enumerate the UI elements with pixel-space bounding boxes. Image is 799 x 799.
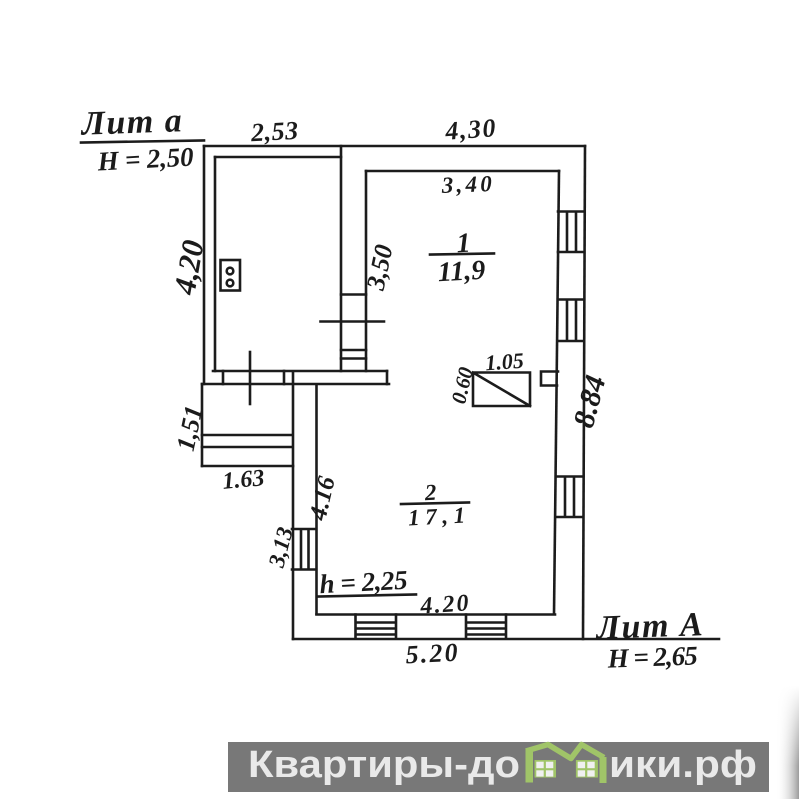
svg-text:h = 2,25: h = 2,25 — [319, 565, 408, 600]
svg-text:1: 1 — [456, 228, 472, 260]
svg-text:1.63: 1.63 — [221, 465, 265, 495]
svg-text:3,40: 3,40 — [440, 171, 492, 198]
svg-text:2,53: 2,53 — [249, 116, 298, 147]
svg-text:4,30: 4,30 — [443, 113, 496, 145]
svg-text:H = 2,50: H = 2,50 — [96, 141, 195, 176]
svg-text:Лит а: Лит а — [79, 102, 182, 143]
svg-text:ики.рф: ики.рф — [609, 744, 757, 786]
svg-text:1.05: 1.05 — [484, 348, 524, 376]
svg-text:H = 2,65: H = 2,65 — [606, 640, 698, 673]
svg-text:2: 2 — [423, 480, 437, 506]
svg-text:11,9: 11,9 — [437, 255, 486, 288]
svg-text:Квартиры-до: Квартиры-до — [248, 744, 520, 786]
svg-text:4.20: 4.20 — [419, 590, 470, 619]
svg-text:5.20: 5.20 — [405, 638, 458, 670]
